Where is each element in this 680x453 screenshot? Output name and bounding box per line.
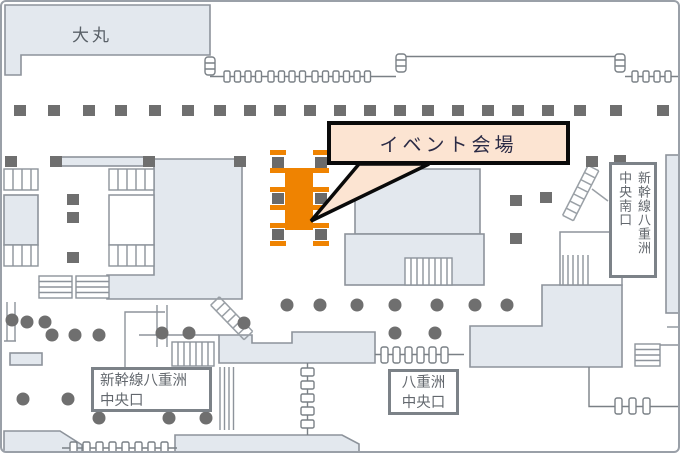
pillar-squares-part — [5, 156, 17, 167]
escalator-icon-part — [592, 189, 608, 201]
pillar-dots-part — [314, 299, 327, 312]
ticket-gates-part — [268, 71, 274, 82]
pillar-squares-part — [143, 156, 155, 167]
daimaru-store-label: 大丸 — [72, 21, 112, 46]
exit-label-line: 中央口 — [100, 392, 209, 412]
pillar-squares-part — [334, 105, 346, 116]
event-venue-area-part — [272, 193, 284, 204]
ticket-gates-part — [301, 420, 314, 428]
ticket-gates-part — [245, 71, 251, 82]
ticket-gates-part — [312, 71, 318, 82]
exit-label-line: 新幹線八重洲 — [633, 171, 652, 273]
ticket-gates-part — [629, 398, 636, 414]
event-venue-area-part — [272, 229, 284, 240]
pillar-squares-part — [67, 194, 79, 205]
pillar-dots-part — [238, 317, 251, 330]
event-venue-area-part — [270, 223, 286, 228]
ticket-gates-part — [235, 71, 241, 82]
pillar-squares-part — [83, 105, 95, 116]
pillar-squares-part — [149, 105, 161, 116]
ticket-gates-part — [279, 71, 285, 82]
event-venue-area-part — [270, 150, 286, 155]
pillar-squares-part — [304, 105, 316, 116]
ticket-gates-part — [135, 442, 142, 453]
stairs-icon-part — [4, 245, 38, 266]
shinkansen-yaesu-central-exit-label: 新幹線八重洲 中央口 — [91, 367, 212, 412]
pillar-dots-part — [62, 393, 75, 406]
ticket-gates-part — [344, 71, 350, 82]
ticket-gates-part — [83, 442, 90, 453]
exit-label-line: 中央口 — [391, 394, 456, 414]
ticket-gates-part — [289, 71, 295, 82]
ticket-gates-part — [417, 347, 424, 363]
ticket-gates-part — [429, 347, 436, 363]
turnstile-icon — [205, 57, 215, 75]
event-venue-callout-text: イベント会場 — [379, 130, 517, 157]
pillar-squares-part — [542, 105, 554, 116]
stairs-icon-part — [411, 258, 447, 285]
event-venue-area-part — [313, 187, 329, 192]
pillar-squares-part — [67, 252, 79, 263]
pillar-dots-part — [163, 412, 176, 425]
pillar-dots-part — [46, 329, 59, 342]
ticket-gates-part — [654, 71, 660, 82]
ticket-gates-part — [224, 71, 230, 82]
ticket-gates-part — [354, 71, 360, 82]
pillar-dots-part — [469, 299, 482, 312]
escalator-icon-part — [563, 165, 599, 220]
small-block — [10, 353, 42, 365]
pillar-squares-part — [48, 105, 60, 116]
pillar-squares-part — [274, 105, 286, 116]
ticket-gates-part — [256, 71, 262, 82]
ticket-gates-part — [161, 442, 168, 453]
pillar-squares-part — [510, 195, 522, 206]
event-venue-area-part — [313, 168, 329, 173]
ticket-gates-part — [381, 347, 388, 363]
event-venue-area-part — [270, 205, 286, 210]
ticket-gates-part — [441, 347, 448, 363]
pillar-dots-part — [93, 329, 106, 342]
ticket-gates-part — [665, 71, 671, 82]
pillar-squares-part — [657, 105, 669, 116]
pillar-dots-part — [21, 316, 34, 329]
ticket-gates-part — [615, 398, 622, 414]
escalator-icon-part — [563, 165, 599, 220]
pillar-dots-part — [6, 314, 19, 327]
ticket-gates-part — [632, 71, 638, 82]
pillar-dots-part — [69, 329, 82, 342]
walkway-strip — [60, 157, 144, 166]
event-venue-area-part — [285, 168, 313, 230]
ticket-gates-part — [96, 442, 103, 453]
ticket-gates-part — [643, 71, 649, 82]
stairs-icon-part — [109, 169, 154, 190]
right-edge-block — [666, 155, 680, 313]
pillar-dots-part — [389, 327, 402, 340]
pillar-dots-part — [17, 393, 30, 406]
ticket-gates-part — [122, 442, 129, 453]
ticket-gates-part — [405, 347, 412, 363]
ticket-gates-part — [301, 407, 314, 415]
pillar-squares-part — [234, 156, 246, 167]
event-venue-area-part — [313, 241, 329, 246]
stairs-icon-part — [109, 245, 154, 266]
left-block — [4, 195, 38, 245]
pillar-squares-part — [610, 105, 622, 116]
event-venue-area-part — [313, 223, 329, 228]
pillar-squares-part — [510, 233, 522, 244]
right-block — [470, 285, 622, 367]
pillar-squares-part — [14, 105, 26, 116]
event-venue-area-part — [270, 187, 286, 192]
pillar-squares-part — [244, 105, 256, 116]
bottom-center-block — [219, 332, 375, 363]
pillar-squares-part — [50, 156, 62, 167]
ticket-gates-part — [393, 347, 400, 363]
pillar-squares-part — [394, 105, 406, 116]
ticket-gates-part — [301, 368, 314, 376]
ticket-gates-part — [109, 442, 116, 453]
yaesu-central-exit-label: 八重洲 中央口 — [388, 369, 459, 415]
stairs-icon-part — [220, 367, 234, 430]
turnstile-icon — [396, 54, 406, 72]
station-floor-map: 大丸 イベント会場 新幹線八重洲 中央南口 新幹線八重洲 中央口 八重洲 中央口 — [0, 0, 680, 453]
event-venue-area — [270, 150, 329, 246]
turnstile-icon — [615, 54, 625, 72]
stairs-icon-part — [4, 169, 38, 190]
ticket-gates-part — [301, 381, 314, 389]
pillar-squares-part — [540, 192, 552, 203]
exit-label-line: 八重洲 — [391, 374, 456, 394]
ticket-gates-part — [333, 71, 339, 82]
pillar-dots-part — [200, 412, 213, 425]
ticket-gates-part — [148, 442, 155, 453]
event-venue-callout: イベント会場 — [327, 121, 570, 165]
pillar-dots-part — [429, 327, 442, 340]
stairs-icon-part — [125, 312, 165, 367]
shinkansen-yaesu-central-south-exit-label: 新幹線八重洲 中央南口 — [609, 162, 657, 278]
bottom-mid-block — [175, 435, 359, 453]
pillar-dots-part — [156, 327, 169, 340]
pillar-dots-part — [39, 316, 52, 329]
rooms-part — [109, 195, 154, 245]
ticket-gates-part — [301, 394, 314, 402]
pillar-squares-part — [482, 105, 494, 116]
pillar-squares-part — [214, 105, 226, 116]
pillar-squares-part — [574, 105, 586, 116]
pillar-squares-part — [422, 105, 434, 116]
exit-label-line: 新幹線八重洲 — [100, 372, 209, 392]
pillar-squares-part — [182, 105, 194, 116]
event-venue-area-part — [270, 168, 286, 173]
pillar-dots-part — [389, 299, 402, 312]
pillar-squares-part — [512, 105, 524, 116]
exit-label-line: 中央南口 — [614, 171, 633, 273]
ticket-gates-part — [300, 71, 306, 82]
pillar-dots-part — [93, 412, 106, 425]
pillar-dots-part — [281, 299, 294, 312]
event-venue-area-part — [270, 241, 286, 246]
pillar-squares-part — [67, 212, 79, 223]
event-venue-area-part — [315, 157, 327, 168]
pillar-squares-part — [586, 156, 598, 167]
pillar-dots-part — [183, 327, 196, 340]
ticket-gates-part — [365, 71, 371, 82]
pillar-squares-part — [452, 105, 464, 116]
pillar-dots-part — [431, 299, 444, 312]
pillar-squares-part — [115, 105, 127, 116]
ticket-gates-part — [643, 398, 650, 414]
ticket-gates-part — [323, 71, 329, 82]
ticket-gates-part — [70, 442, 77, 453]
event-venue-area-part — [272, 157, 284, 168]
pillar-dots-part — [351, 299, 364, 312]
pillar-squares-part — [364, 105, 376, 116]
event-venue-area-part — [315, 229, 327, 240]
pillar-dots-part — [501, 299, 514, 312]
